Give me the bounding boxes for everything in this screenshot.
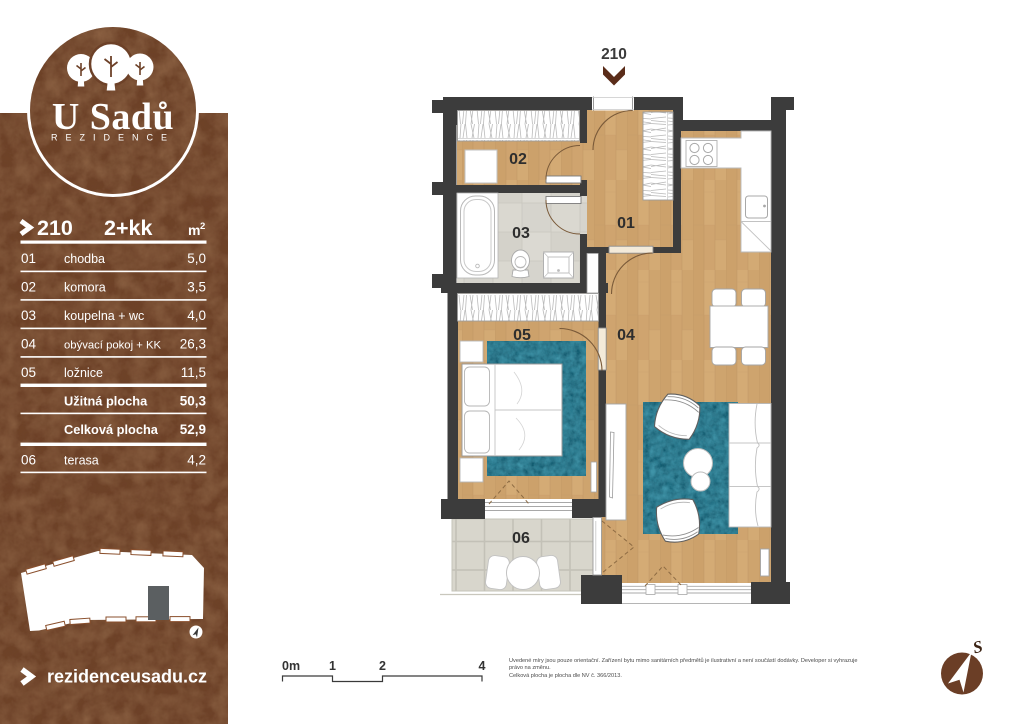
svg-text:02: 02 [21, 280, 36, 295]
svg-text:4: 4 [479, 659, 486, 673]
svg-text:26,3: 26,3 [180, 337, 206, 352]
svg-text:3,5: 3,5 [187, 280, 206, 295]
svg-text:01: 01 [21, 251, 36, 266]
svg-text:5,0: 5,0 [187, 251, 206, 266]
svg-text:4,0: 4,0 [187, 308, 206, 323]
svg-text:210: 210 [37, 216, 73, 240]
svg-text:S: S [971, 637, 985, 658]
svg-text:chodba: chodba [64, 252, 105, 266]
svg-text:2: 2 [379, 659, 386, 673]
svg-text:koupelna + wc: koupelna + wc [64, 309, 144, 323]
svg-text:rezidenceusadu.cz: rezidenceusadu.cz [47, 667, 207, 687]
svg-text:Celková plocha: Celková plocha [64, 422, 159, 437]
svg-text:52,9: 52,9 [180, 422, 206, 437]
svg-text:ložnice: ložnice [64, 366, 103, 380]
svg-text:REZIDENCE: REZIDENCE [51, 133, 175, 143]
svg-text:2+kk: 2+kk [104, 216, 152, 240]
svg-text:06: 06 [21, 453, 36, 468]
svg-text:04: 04 [617, 327, 635, 344]
svg-text:11,5: 11,5 [181, 365, 206, 380]
svg-text:01: 01 [617, 215, 635, 232]
svg-text:terasa: terasa [64, 454, 99, 468]
svg-text:0m: 0m [282, 659, 300, 673]
svg-text:Užitná plocha: Užitná plocha [64, 394, 148, 409]
svg-text:04: 04 [21, 337, 37, 352]
svg-text:obývací pokoj + KK: obývací pokoj + KK [64, 340, 161, 352]
svg-text:05: 05 [21, 365, 36, 380]
svg-text:210: 210 [601, 46, 627, 63]
svg-text:06: 06 [512, 530, 530, 547]
svg-text:03: 03 [21, 308, 36, 323]
svg-text:komora: komora [64, 281, 106, 295]
svg-text:05: 05 [513, 327, 531, 344]
svg-text:1: 1 [329, 659, 336, 673]
svg-text:4,2: 4,2 [187, 453, 206, 468]
svg-text:50,3: 50,3 [180, 394, 207, 409]
svg-text:03: 03 [512, 225, 530, 242]
svg-text:m: m [188, 222, 200, 238]
svg-text:02: 02 [509, 151, 527, 168]
svg-text:2: 2 [200, 221, 205, 232]
